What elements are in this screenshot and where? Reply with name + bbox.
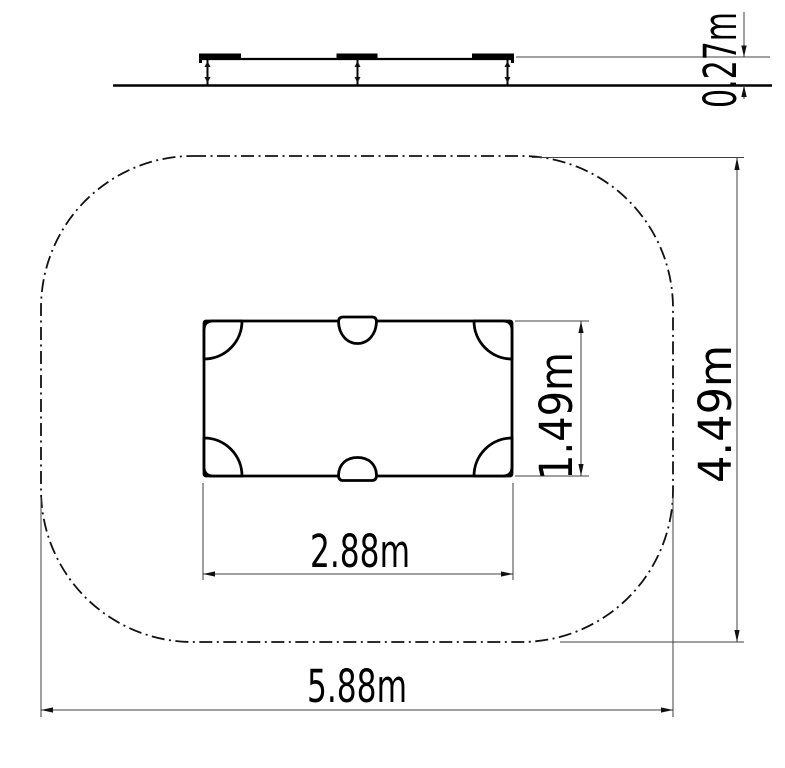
height-dim-label: 0.27m [694, 12, 747, 108]
platform-pad-left [199, 54, 241, 59]
side-view: 0.27m [113, 12, 772, 108]
corner-pad-bottom-right [474, 438, 512, 476]
platform-pad-middle [337, 54, 378, 59]
platform-end-cap-right [511, 54, 514, 64]
technical-drawing: 0.27m 1.49m 4 [0, 0, 785, 768]
corner-pad-top-left [204, 321, 242, 359]
platform-leg-middle [355, 59, 361, 85]
corner-pad-bottom-left [204, 438, 242, 476]
platform-leg-left [205, 59, 211, 85]
equipment-width-label: 2.88m [310, 525, 410, 578]
mid-support-top [339, 317, 377, 344]
equipment-width-dimension: 2.88m [203, 483, 513, 580]
platform-leg-right [505, 59, 511, 85]
corner-pad-top-right [474, 321, 512, 359]
plan-view: 1.49m 4.49m 2.88m 5.88m [41, 156, 744, 717]
equipment-depth-dimension: 1.49m [515, 321, 589, 480]
platform-end-cap-left [199, 54, 202, 64]
mid-support-bottom [339, 458, 377, 481]
platform-pad-right [472, 54, 514, 59]
zone-depth-label: 4.49m [689, 345, 742, 483]
height-dimension: 0.27m [516, 12, 770, 108]
equipment-depth-label: 1.49m [530, 352, 583, 480]
drawing-canvas: 0.27m 1.49m 4 [0, 0, 785, 768]
zone-width-label: 5.88m [307, 660, 407, 713]
